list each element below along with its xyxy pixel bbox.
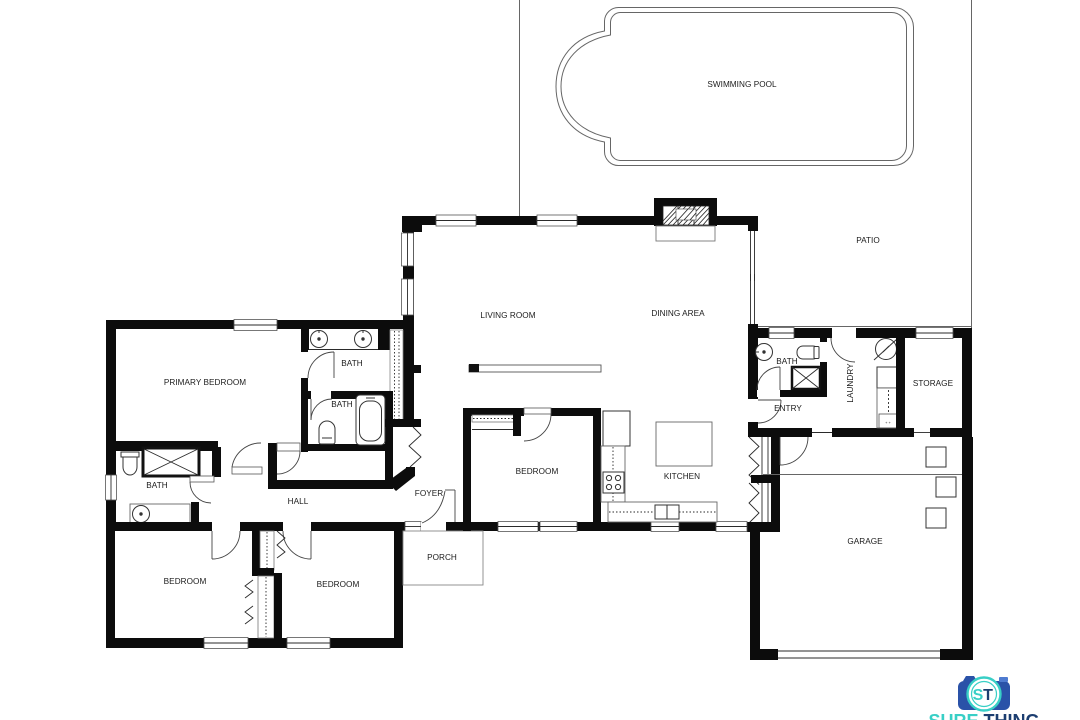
svg-text:BEDROOM: BEDROOM	[317, 580, 360, 589]
svg-text:BATH: BATH	[341, 359, 362, 368]
svg-text:T: T	[983, 687, 993, 704]
svg-text:BEDROOM: BEDROOM	[164, 577, 207, 586]
svg-text:BATH: BATH	[146, 481, 167, 490]
svg-text:S: S	[973, 687, 984, 704]
svg-text:PRIMARY BEDROOM: PRIMARY BEDROOM	[164, 378, 246, 387]
svg-text:LAUNDRY: LAUNDRY	[846, 363, 855, 403]
svg-text:LIVING ROOM: LIVING ROOM	[480, 311, 535, 320]
svg-text:PORCH: PORCH	[427, 553, 457, 562]
svg-text:BATH: BATH	[331, 400, 352, 409]
svg-text:SURETHING: SURETHING	[928, 711, 1039, 720]
svg-text:KITCHEN: KITCHEN	[664, 472, 700, 481]
svg-text:BEDROOM: BEDROOM	[516, 467, 559, 476]
svg-text:GARAGE: GARAGE	[847, 537, 883, 546]
svg-text:+ +: + +	[885, 420, 891, 425]
svg-text:HALL: HALL	[288, 497, 309, 506]
svg-text:BATH: BATH	[776, 357, 797, 366]
svg-text:PATIO: PATIO	[856, 236, 880, 245]
svg-text:SWIMMING POOL: SWIMMING POOL	[707, 80, 777, 89]
svg-text:FOYER: FOYER	[415, 489, 443, 498]
svg-text:ENTRY: ENTRY	[774, 404, 802, 413]
svg-text:DINING AREA: DINING AREA	[651, 309, 705, 318]
svg-text:STORAGE: STORAGE	[913, 379, 954, 388]
